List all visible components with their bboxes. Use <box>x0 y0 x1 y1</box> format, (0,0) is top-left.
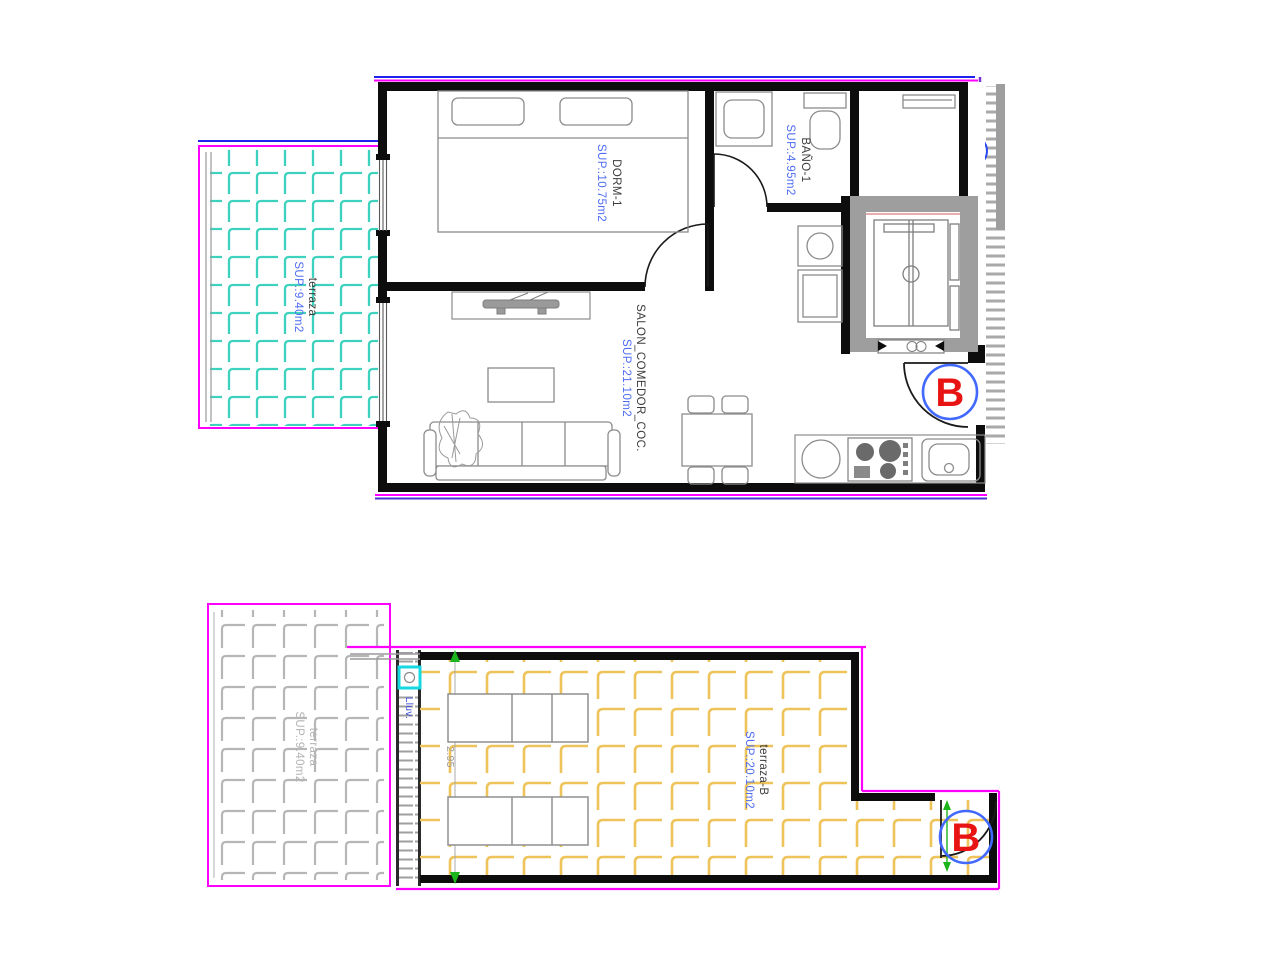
dorm-label: DORM-1 <box>610 159 622 207</box>
dimension-text: 2.95 <box>444 746 456 768</box>
salon-area: SUP.:21.10m2 <box>620 339 632 417</box>
drain-label: Lluv. <box>403 697 414 719</box>
terrace-b-outline <box>347 647 999 889</box>
lounger <box>448 797 588 845</box>
terrace-b-label: terraza-B <box>757 745 769 796</box>
drain-symbol <box>399 667 420 688</box>
bano-label: BAÑO-1 <box>799 137 812 182</box>
salon-label: SALON_COMEDOR_COC. <box>634 304 646 452</box>
floorplan-drawing: terraza SUP.:9.40m2 <box>0 0 1280 960</box>
plan-roof-terrace: terraza SUP.:9.40m2 <box>208 604 999 889</box>
gray-terrace-label: terraza <box>307 728 319 767</box>
terrace-b-area: SUP.:20.10m2 <box>743 731 755 809</box>
terrace-top-label: terraza <box>306 278 318 317</box>
unit-letter-bottom: B <box>951 816 980 860</box>
dorm-area: SUP.:10.75m2 <box>595 144 607 222</box>
unit-letter-top: B <box>935 371 964 415</box>
stair-wall <box>996 84 1005 230</box>
elevator-door <box>878 340 944 353</box>
bano-area: SUP.:4.95m2 <box>784 124 796 195</box>
elevator <box>850 196 978 353</box>
terrace-top-area: SUP.:9.40m2 <box>292 261 304 332</box>
floorplan-canvas: terraza SUP.:9.40m2 <box>0 0 1280 960</box>
gray-terrace-area: SUP.:9.40m2 <box>293 711 305 782</box>
terrace-top: terraza SUP.:9.40m2 <box>198 141 392 428</box>
elevator-car <box>874 220 959 330</box>
lounger <box>448 694 588 742</box>
plan-apartment: terraza SUP.:9.40m2 <box>198 77 1005 499</box>
